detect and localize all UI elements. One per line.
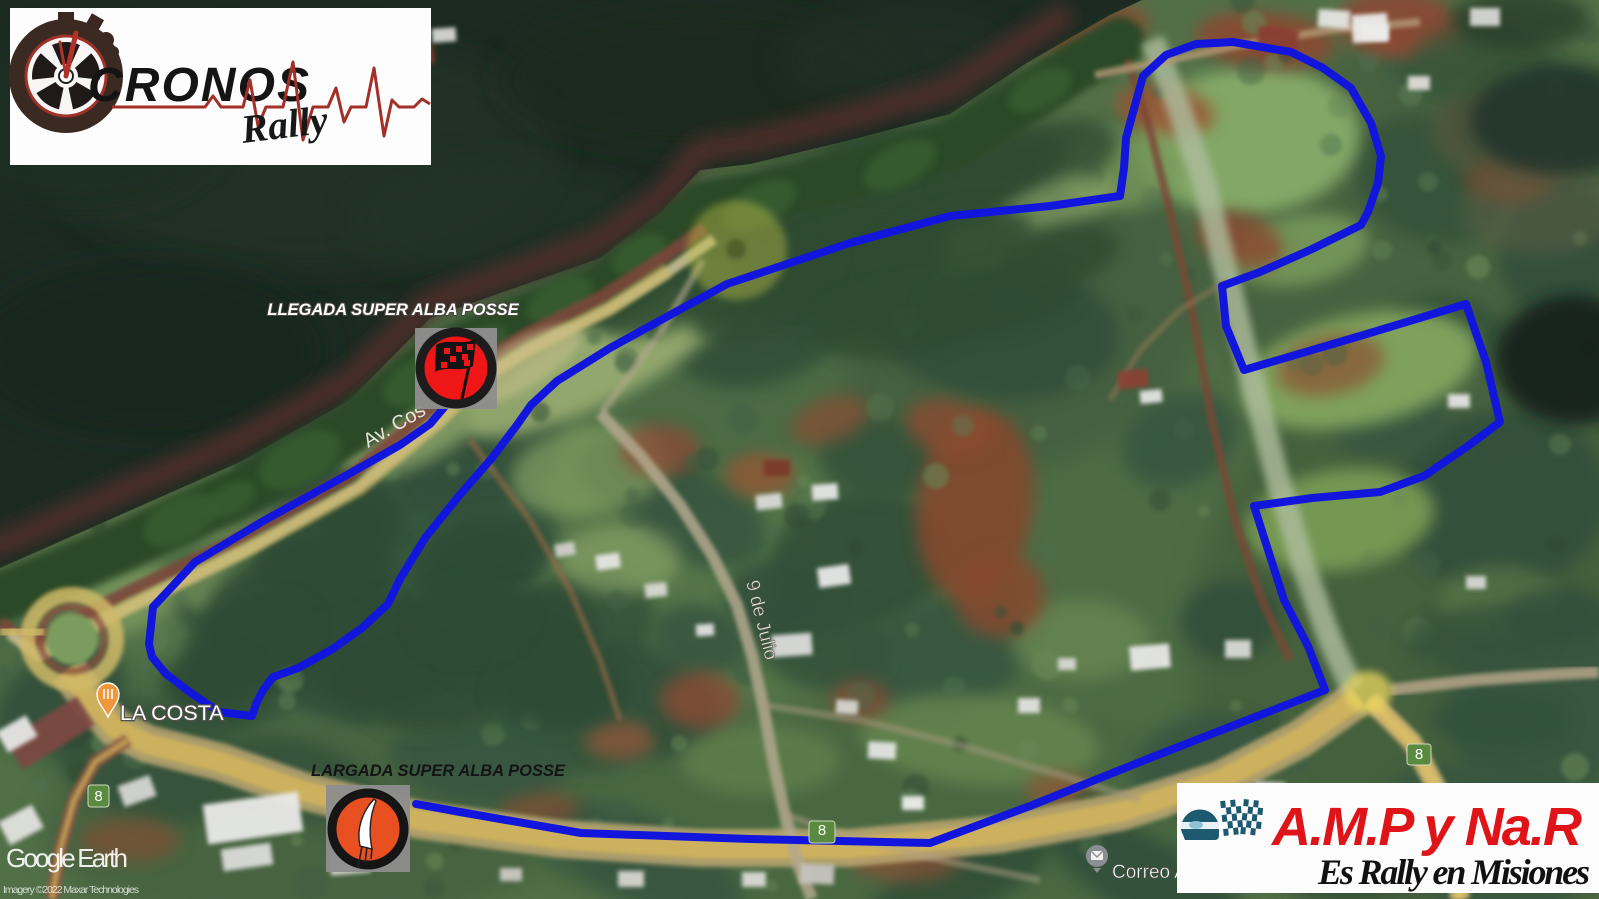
svg-text:LLEGADA SUPER ALBA POSSE: LLEGADA SUPER ALBA POSSE: [267, 301, 519, 319]
svg-text:LARGADA SUPER ALBA POSSE: LARGADA SUPER ALBA POSSE: [311, 762, 566, 780]
svg-text:Es Rally en Misiones: Es Rally en Misiones: [1317, 852, 1590, 892]
svg-text:Correo A: Correo A: [1112, 862, 1187, 883]
svg-text:Google Earth: Google Earth: [6, 843, 128, 873]
svg-text:A.M.P y Na.R: A.M.P y Na.R: [1270, 797, 1582, 857]
svg-text:8: 8: [1415, 746, 1423, 763]
svg-text:Imagery ©2022 Maxar Technologi: Imagery ©2022 Maxar Technologies: [3, 884, 139, 896]
svg-text:8: 8: [94, 788, 102, 805]
svg-text:8: 8: [818, 822, 826, 839]
svg-text:LA COSTA: LA COSTA: [120, 701, 224, 725]
